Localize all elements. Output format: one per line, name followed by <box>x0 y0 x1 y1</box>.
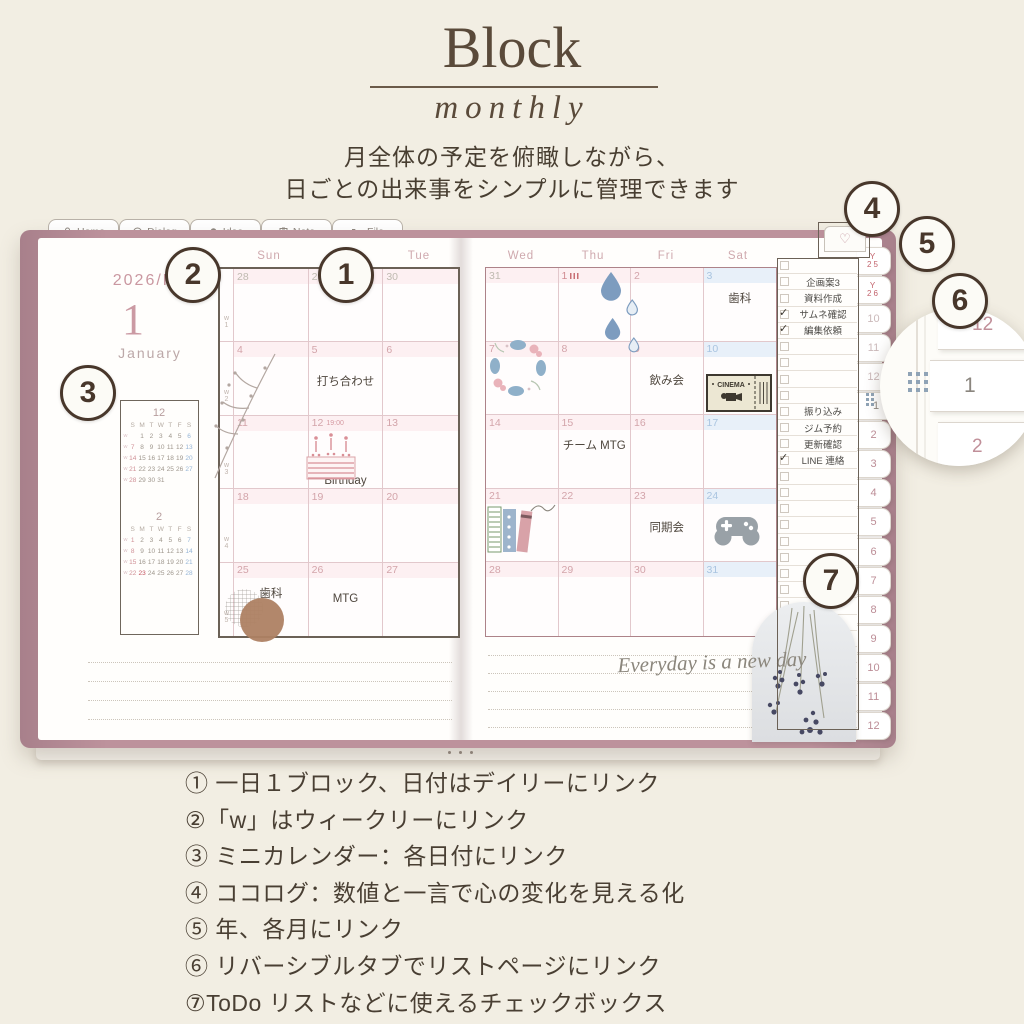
description-line-1: 月全体の予定を俯瞰しながら、 <box>0 138 1024 172</box>
weekday-header-sun: Sun <box>234 250 304 262</box>
mini-day[interactable]: 11 <box>166 442 175 453</box>
todo-checkbox[interactable] <box>780 407 789 416</box>
legend-item: ②「w」はウィークリーにリンク <box>185 802 685 839</box>
mini-day-header: W <box>156 420 165 431</box>
todo-row[interactable] <box>777 339 857 355</box>
date-band: 30 <box>631 562 703 577</box>
mini-day-header: S <box>128 420 137 431</box>
heart-icon: ♡ <box>839 231 851 247</box>
day-cell[interactable]: 30 <box>383 269 458 342</box>
legend-item: ⑦ToDo リストなどに使えるチェックボックス <box>185 985 685 1022</box>
raindrops-sticker <box>595 270 647 363</box>
weekday-header-fri: Fri <box>631 250 701 262</box>
mini-day[interactable]: 9 <box>137 546 146 557</box>
note-line <box>88 681 452 682</box>
event-label: 飲み会 <box>631 372 703 388</box>
day-number[interactable]: 26 <box>312 564 324 576</box>
mini-day[interactable]: 24 <box>147 568 156 579</box>
side-tab-10[interactable]: 10 <box>857 305 891 333</box>
todo-checkbox[interactable] <box>780 358 789 367</box>
mini-day[interactable]: 24 <box>156 464 165 475</box>
day-number[interactable]: 24 <box>707 490 719 502</box>
date-band: 21 <box>486 489 558 504</box>
todo-checkbox[interactable] <box>780 537 789 546</box>
todo-label: 振り込み <box>792 404 854 418</box>
mini-day[interactable]: 8 <box>137 442 146 453</box>
mini-day <box>175 475 184 486</box>
todo-row[interactable]: 振り込み <box>777 404 857 420</box>
mini-day[interactable]: 23 <box>147 464 156 475</box>
day-cell[interactable]: 3歯科 <box>704 268 777 342</box>
date-band: 6 <box>383 342 458 357</box>
mini-day[interactable]: 30 <box>147 475 156 486</box>
mini-day[interactable]: 19 <box>175 453 184 464</box>
annotation-circle-3: 3 <box>60 365 116 421</box>
date-band: 3 <box>704 268 777 283</box>
legend-list: ① 一日１ブロック、日付はデイリーにリンク②「w」はウィークリーにリンク③ ミニ… <box>185 765 685 1021</box>
mini-day[interactable]: 15 <box>128 557 137 568</box>
day-number[interactable]: 17 <box>707 417 719 429</box>
week-number-link[interactable]: w4 <box>220 489 234 562</box>
check-mark-icon: ✓ <box>779 306 788 319</box>
zoomed-tab-label: 2 <box>972 436 983 458</box>
day-cell[interactable]: 5打ち合わせ <box>309 342 384 415</box>
weekday-header-sat: Sat <box>703 250 773 262</box>
weekday-header-thu: Thu <box>558 250 628 262</box>
mini-day[interactable]: 29 <box>137 475 146 486</box>
todo-label: サムネ確認 <box>792 307 854 321</box>
todo-label: ジム予約 <box>792 421 854 435</box>
mini-day[interactable]: 25 <box>156 568 165 579</box>
date-band: 14 <box>486 415 558 430</box>
mini-day[interactable]: 25 <box>166 464 175 475</box>
mini-day[interactable]: 27 <box>175 568 184 579</box>
date-band: 25 <box>234 563 308 578</box>
legend-item: ③ ミニカレンダー：各日付にリンク <box>185 838 685 875</box>
mini-grid: SMTWTFSw123456w78910111213w1415161718192… <box>123 420 195 486</box>
event-label: 同期会 <box>631 519 703 535</box>
birthday-cake-sticker <box>300 432 362 489</box>
mini-day-header: W <box>156 524 165 535</box>
day-cell[interactable]: 29 <box>559 562 632 636</box>
mini-calendar-february: 2SMTWTFSw1234567w891011121314w1516171819… <box>123 511 195 579</box>
day-cell[interactable]: 23同期会 <box>631 489 704 563</box>
handwriting-squiggle <box>531 505 555 511</box>
mini-day[interactable]: 4 <box>156 535 165 546</box>
todo-checkbox[interactable] <box>780 277 789 286</box>
todo-row[interactable] <box>777 355 857 371</box>
date-band: 23 <box>631 489 703 504</box>
mini-day[interactable]: 13 <box>184 442 193 453</box>
date-band: 20 <box>383 489 458 504</box>
mini-day[interactable]: 12 <box>175 442 184 453</box>
todo-label: 更新確認 <box>792 437 854 451</box>
mini-day[interactable]: 14 <box>128 453 137 464</box>
date-band: 19 <box>309 489 383 504</box>
mini-day[interactable]: 3 <box>147 535 156 546</box>
mini-day <box>128 431 137 442</box>
day-cell[interactable]: 30 <box>631 562 704 636</box>
todo-row[interactable]: LINE 連絡✓ <box>777 452 857 468</box>
day-number[interactable]: 20 <box>386 491 398 503</box>
legend-item: ① 一日１ブロック、日付はデイリーにリンク <box>185 765 685 802</box>
mini-day-header: T <box>147 420 156 431</box>
mini-day[interactable]: 1 <box>137 431 146 442</box>
todo-checkbox[interactable] <box>780 520 789 529</box>
date-band: 31 <box>704 562 777 577</box>
mini-day[interactable]: 14 <box>184 546 193 557</box>
mini-day-header: M <box>137 420 146 431</box>
todo-checkbox[interactable] <box>780 472 789 481</box>
mini-day[interactable]: 16 <box>137 557 146 568</box>
mini-day[interactable]: 20 <box>175 557 184 568</box>
game-controller-sticker <box>712 512 762 553</box>
day-number[interactable]: 29 <box>562 564 574 576</box>
week-number-link[interactable]: w1 <box>220 269 234 342</box>
mini-day <box>166 475 175 486</box>
day-number[interactable]: 1 <box>562 270 568 282</box>
todo-checkbox[interactable] <box>780 375 789 384</box>
todo-row[interactable] <box>777 258 857 274</box>
day-number[interactable]: 10 <box>707 343 719 355</box>
date-band: 26 <box>309 563 383 578</box>
mini-day[interactable]: 17 <box>147 557 156 568</box>
texture-dot-sticker <box>222 586 302 649</box>
todo-checkbox[interactable] <box>780 553 789 562</box>
side-tab-3[interactable]: 3 <box>857 450 891 478</box>
books-sticker <box>487 503 557 560</box>
event-label: チーム MTG <box>559 437 631 453</box>
side-tab-y26[interactable]: Y26 <box>857 276 891 304</box>
mini-day[interactable]: 6 <box>175 535 184 546</box>
month-number[interactable]: 1 <box>103 294 163 345</box>
day-cell[interactable]: 20 <box>383 489 458 562</box>
day-number[interactable]: 30 <box>634 564 646 576</box>
date-band: 22 <box>559 489 631 504</box>
mini-day[interactable]: 10 <box>156 442 165 453</box>
todo-checkbox[interactable] <box>780 504 789 513</box>
side-tab-6[interactable]: 6 <box>857 538 891 566</box>
todo-row[interactable] <box>777 517 857 533</box>
event-label: MTG <box>309 593 383 605</box>
mini-day[interactable]: 15 <box>137 453 146 464</box>
todo-label: 資料作成 <box>792 291 854 305</box>
day-cell[interactable]: 6 <box>383 342 458 415</box>
mini-day[interactable]: 22 <box>137 464 146 475</box>
note-line <box>88 662 452 663</box>
todo-checkbox[interactable] <box>780 569 789 578</box>
day-cell[interactable]: 28 <box>234 269 309 342</box>
mini-day-header: M <box>137 524 146 535</box>
todo-row[interactable] <box>777 371 857 387</box>
note-line <box>88 700 452 701</box>
date-band: 10 <box>704 342 777 357</box>
side-tab-2[interactable]: 2 <box>857 421 891 449</box>
day-number[interactable]: 14 <box>489 417 501 429</box>
day-number[interactable]: 22 <box>562 490 574 502</box>
side-tab-11[interactable]: 11 <box>857 683 891 711</box>
day-number[interactable]: 5 <box>312 344 318 356</box>
weekday-header-tue: Tue <box>384 250 454 262</box>
todo-label: 企画案3 <box>792 275 854 289</box>
day-number[interactable]: 31 <box>489 270 501 282</box>
date-band: 16 <box>631 415 703 430</box>
date-band: 27 <box>383 563 458 578</box>
tab-magnifier: 12 1 2 <box>880 308 1024 466</box>
legend-item: ⑥ リバーシブルタブでリストページにリンク <box>185 948 685 985</box>
mini-day[interactable]: 28 <box>184 568 193 579</box>
day-cell[interactable]: 26MTG <box>309 563 384 636</box>
annotation-circle-1: 1 <box>318 247 374 303</box>
todo-checkbox[interactable] <box>780 488 789 497</box>
mini-day[interactable]: 27 <box>184 464 193 475</box>
mini-day[interactable]: 1 <box>128 535 137 546</box>
wreath-sticker <box>486 336 550 405</box>
date-band: 30 <box>383 269 458 284</box>
mini-day[interactable]: 21 <box>128 464 137 475</box>
date-band: 5 <box>309 342 383 357</box>
day-cell[interactable]: 27 <box>383 563 458 636</box>
mini-day[interactable]: 18 <box>156 557 165 568</box>
mini-day-header: T <box>147 524 156 535</box>
day-cell[interactable]: 22 <box>559 489 632 563</box>
mini-day-header: S <box>184 524 193 535</box>
date-band: 15 <box>559 415 631 430</box>
zoomed-tab-2[interactable]: 2 <box>938 422 1024 466</box>
mini-day[interactable]: 22 <box>128 568 137 579</box>
day-cell[interactable]: 28 <box>486 562 559 636</box>
mini-month-title[interactable]: 2 <box>123 511 195 524</box>
time-note: 19:00 <box>326 420 344 427</box>
event-label: 歯科 <box>704 290 777 306</box>
note-line <box>88 719 452 720</box>
annotation-circle-5: 5 <box>899 216 955 272</box>
annotation-circle-2: 2 <box>165 247 221 303</box>
mini-day[interactable]: 2 <box>147 431 156 442</box>
date-band: 29 <box>559 562 631 577</box>
mini-day[interactable]: 10 <box>147 546 156 557</box>
day-cell[interactable]: 17 <box>704 415 777 489</box>
date-band: 31 <box>486 268 558 283</box>
todo-row[interactable]: 更新確認 <box>777 436 857 452</box>
mini-day[interactable]: 28 <box>128 475 137 486</box>
todo-row[interactable] <box>777 501 857 517</box>
mini-day[interactable]: 3 <box>156 431 165 442</box>
side-tab-4[interactable]: 4 <box>857 479 891 507</box>
mini-day[interactable]: 18 <box>166 453 175 464</box>
day-number[interactable]: 12 <box>312 417 324 429</box>
day-number[interactable]: 25 <box>237 564 249 576</box>
day-number[interactable]: 19 <box>312 491 324 503</box>
day-cell[interactable]: 15チーム MTG <box>559 415 632 489</box>
day-number[interactable]: 21 <box>489 490 501 502</box>
day-number[interactable]: 30 <box>386 271 398 283</box>
mini-calendar-box: 12SMTWTFSw123456w78910111213w14151617181… <box>120 400 199 635</box>
day-number[interactable]: 31 <box>707 564 719 576</box>
legend-item: ⑤ 年、各月にリンク <box>185 911 685 948</box>
mini-day-header: F <box>175 524 184 535</box>
page-title: Block <box>0 14 1024 81</box>
mini-day[interactable]: 16 <box>147 453 156 464</box>
side-tab-5[interactable]: 5 <box>857 508 891 536</box>
screenshot: Block monthly 月全体の予定を俯瞰しながら、 日ごとの出来事をシンプ… <box>0 0 1024 1024</box>
date-band: 13 <box>383 416 458 431</box>
mini-day[interactable]: 17 <box>156 453 165 464</box>
mini-calendar-december: 12SMTWTFSw123456w78910111213w14151617181… <box>123 407 195 486</box>
todo-checkbox[interactable] <box>780 423 789 432</box>
event-label: 打ち合わせ <box>309 373 383 389</box>
todo-checkbox[interactable] <box>780 294 789 303</box>
page-handle-dots[interactable] <box>448 751 473 754</box>
mini-day-header: T <box>166 420 175 431</box>
todo-checkbox[interactable] <box>780 585 789 594</box>
cinema-ticket-label: CINEMA <box>717 382 745 389</box>
day-cell[interactable]: 13 <box>383 416 458 489</box>
day-number[interactable]: 15 <box>562 417 574 429</box>
day-cell[interactable]: 14 <box>486 415 559 489</box>
day-cell[interactable]: 16 <box>631 415 704 489</box>
day-cell[interactable]: 18 <box>234 489 309 562</box>
todo-row[interactable] <box>777 534 857 550</box>
page-subtitle: monthly <box>0 90 1024 127</box>
mini-day[interactable]: 7 <box>128 442 137 453</box>
mini-day[interactable]: 12 <box>166 546 175 557</box>
mini-day-header: S <box>184 420 193 431</box>
todo-checkbox[interactable] <box>780 261 789 270</box>
annotation-circle-6: 6 <box>932 273 988 329</box>
todo-row[interactable]: 企画案3 <box>777 274 857 290</box>
mini-day[interactable]: 11 <box>156 546 165 557</box>
mini-day[interactable]: 21 <box>184 557 193 568</box>
mini-day[interactable]: 31 <box>156 475 165 486</box>
side-tab-7[interactable]: 7 <box>857 567 891 595</box>
todo-row[interactable] <box>777 388 857 404</box>
day-number[interactable]: 18 <box>237 491 249 503</box>
day-number[interactable]: 28 <box>489 564 501 576</box>
day-number[interactable]: 13 <box>386 417 398 429</box>
mini-day[interactable]: 13 <box>175 546 184 557</box>
mini-day[interactable]: 5 <box>166 535 175 546</box>
legend-item: ④ ココログ：数値と一言で心の変化を見える化 <box>185 875 685 912</box>
date-band: 17 <box>704 415 777 430</box>
mini-day[interactable]: 5 <box>175 431 184 442</box>
day-number[interactable]: 8 <box>562 343 568 355</box>
mini-day[interactable]: 26 <box>166 568 175 579</box>
mini-day[interactable]: 23 <box>137 568 146 579</box>
date-band: 1219:00 <box>309 416 383 431</box>
mini-day[interactable]: 19 <box>166 557 175 568</box>
mini-grid: SMTWTFSw1234567w891011121314w15161718192… <box>123 524 195 579</box>
todo-checkbox[interactable] <box>780 342 789 351</box>
mini-day-header: T <box>166 524 175 535</box>
holiday-mark <box>570 273 579 279</box>
mini-day[interactable]: 26 <box>175 464 184 475</box>
day-number[interactable]: 27 <box>386 564 398 576</box>
mini-day <box>184 475 193 486</box>
todo-label: 編集依頼 <box>792 323 854 337</box>
weekday-header-wed: Wed <box>486 250 556 262</box>
date-band: 18 <box>234 489 308 504</box>
zoomed-tab-1[interactable]: 1 <box>930 360 1024 412</box>
todo-row[interactable] <box>777 469 857 485</box>
todo-row[interactable]: 編集依頼✓ <box>777 323 857 339</box>
todo-row[interactable] <box>777 485 857 501</box>
branch-sticker <box>203 350 285 490</box>
annotation-circle-7: 7 <box>803 553 859 609</box>
todo-label: LINE 連絡 <box>792 453 854 467</box>
drag-handle-dots[interactable] <box>866 393 874 406</box>
date-band: 24 <box>704 489 777 504</box>
month-name: January <box>98 345 202 361</box>
day-number[interactable]: 6 <box>386 344 392 356</box>
drag-handle-dots-zoomed[interactable] <box>908 372 928 392</box>
day-number[interactable]: 28 <box>237 271 249 283</box>
day-number[interactable]: 23 <box>634 490 646 502</box>
mini-day[interactable]: 6 <box>184 431 193 442</box>
annotation-circle-4: 4 <box>844 181 900 237</box>
todo-row[interactable]: 資料作成 <box>777 290 857 306</box>
day-cell[interactable]: 19 <box>309 489 384 562</box>
mini-day-header: F <box>175 420 184 431</box>
mini-day[interactable]: 4 <box>166 431 175 442</box>
day-number[interactable]: 16 <box>634 417 646 429</box>
date-band: 28 <box>486 562 558 577</box>
mini-month-title[interactable]: 12 <box>123 407 195 420</box>
todo-row[interactable]: サムネ確認✓ <box>777 307 857 323</box>
todo-row[interactable]: ジム予約 <box>777 420 857 436</box>
todo-checkbox[interactable] <box>780 391 789 400</box>
date-band: 28 <box>234 269 308 284</box>
todo-checkbox[interactable] <box>780 439 789 448</box>
zoomed-tab-label: 1 <box>964 374 976 398</box>
mini-day[interactable]: 2 <box>137 535 146 546</box>
mini-day-header: S <box>128 524 137 535</box>
mini-day[interactable]: 8 <box>128 546 137 557</box>
side-tab-12[interactable]: 12 <box>857 712 891 740</box>
mini-day[interactable]: 9 <box>147 442 156 453</box>
title-divider <box>370 86 658 88</box>
check-mark-icon: ✓ <box>779 322 788 335</box>
side-tab-8[interactable]: 8 <box>857 596 891 624</box>
day-number[interactable]: 3 <box>707 270 713 282</box>
mini-day[interactable]: 7 <box>184 535 193 546</box>
cinema-ticket-sticker: CINEMA <box>706 374 772 417</box>
day-cell[interactable]: 31 <box>486 268 559 342</box>
mini-day[interactable]: 20 <box>184 453 193 464</box>
check-mark-icon: ✓ <box>779 451 788 464</box>
